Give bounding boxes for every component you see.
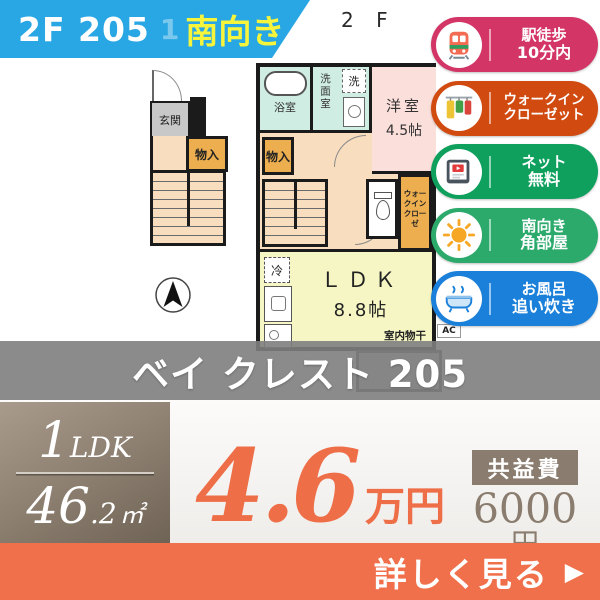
badge-walkin-closet: ウォークイン クローゼット [431,81,598,136]
closet-icon [436,85,482,131]
unit-ribbon: 2F 205 1 南向き [0,0,310,58]
floorplan-1f-section: 玄関 物入 [150,70,228,246]
rent-unit: 万円 [365,487,445,527]
room-storage-1f: 物入 [186,136,228,172]
room-western: 洋室 4.5帖 [372,67,436,174]
area-number: 46 [26,481,90,531]
washstand-fixture [343,97,365,127]
wic-label-line2: クローゼ [404,209,427,228]
stairs-divider [187,173,190,226]
badge-text-line2: クローゼット [496,108,592,123]
building-name-banner: ベイ クレスト 205 [0,341,600,400]
wic-label-line1: ウォークイン [404,189,427,208]
bathroom-label: 浴室 [260,99,310,115]
building-name: ベイ クレスト 205 [132,344,468,398]
floorplan-2f-section: 浴室 洗面室 洗 洋室 4.5帖 物入 ウォークイン クローゼ 冷 [256,63,436,351]
bathtub-fixture [264,71,307,96]
common-fee-label: 共益費 [472,450,578,485]
badge-text-line2: 10分内 [496,44,592,62]
washroom-label: 洗面室 [318,73,333,111]
summary-strip: 1 LDK 46 .2 ㎡ 4.6 万円 共益費 6000円 [0,400,600,543]
room-washroom: 洗面室 洗 [313,67,372,133]
toilet-tank [374,192,392,199]
spec-divider [16,472,154,474]
sun-icon [436,212,482,258]
north-arrow-icon [154,276,192,314]
stairs-1f [150,170,226,246]
layout-area-box: 1 LDK 46 .2 ㎡ [0,402,170,543]
badge-divider [489,219,491,251]
ribbon-watermark: 1 [160,13,179,46]
layout-number: 1 [38,415,70,465]
layout-suffix: LDK [70,431,132,464]
floorplan-floor-label: 2 F [341,8,396,32]
badge-divider [489,156,491,188]
laundry-machine-slot: 洗 [342,69,366,93]
badge-text-line2: 無料 [496,171,592,189]
unit-number: 2F 205 [18,10,150,49]
room-genkan: 玄関 [150,101,190,138]
western-room-label: 洋室 [372,95,436,116]
fridge-slot: 冷 [264,257,290,283]
area-decimal: .2 [90,497,117,530]
see-details-label: 詳しく見る [374,548,549,596]
floor-area [150,136,188,172]
ldk-label-group: ＬＤＫ 8.8帖 [290,264,432,322]
area-unit: ㎡ [120,495,144,530]
room-bathroom: 浴室 [260,67,313,133]
room-walkin-closet: ウォークイン クローゼ [398,174,432,251]
kitchen-sink-fixture [264,286,292,322]
ldk-size: 8.8帖 [290,296,432,322]
facing-direction-label: 南向き [185,5,284,53]
rent-price: 4.6 万円 [175,400,465,543]
badge-text-line1: ネット [496,154,592,171]
hallway-door-arc [334,135,366,167]
badge-divider [489,92,491,124]
toilet-bowl [376,200,390,220]
badge-text-line1: 駅徒歩 [496,27,592,44]
badge-bath-reheat: お風呂 追い炊き [431,271,598,326]
room-ldk: 冷 ＬＤＫ 8.8帖 室内物干 [260,249,432,347]
rent-value: 4.6 [195,445,357,527]
entrance-door-arc [153,70,182,101]
badge-free-internet: ネット 無料 [431,144,598,199]
badge-text-line2: 追い炊き [496,298,592,316]
internet-icon [436,149,482,195]
right-arrow-icon: ▶ [565,557,584,586]
wall-segment [190,97,206,138]
common-fee-value: 6000 [473,485,577,533]
listing-card: 2F 205 1 南向き 2 F 玄関 物入 浴室 洗面室 洗 洋室 4.5帖 … [0,0,600,600]
badge-south-corner: 南向き 角部屋 [431,208,598,263]
room-toilet [366,179,398,239]
badge-text-line2: 角部屋 [496,234,592,252]
stairs-2f [262,179,328,247]
room-storage-2f: 物入 [262,137,294,175]
badge-text-line1: 南向き [496,218,592,235]
badge-station-walk: 駅徒歩 10分内 [431,17,598,72]
see-details-button[interactable]: 詳しく見る ▶ [0,543,600,600]
train-icon [436,22,482,68]
bathtub-icon [436,276,482,322]
badge-divider [489,283,491,315]
western-room-size: 4.5帖 [372,120,436,140]
badge-text-line1: ウォークイン [496,93,592,108]
stairs-divider [294,182,297,229]
common-fee-block: 共益費 6000円 [460,450,590,558]
badge-text-line1: お風呂 [496,281,592,298]
badge-divider [489,29,491,61]
ldk-label: ＬＤＫ [290,264,432,294]
feature-badge-list: 駅徒歩 10分内 ウォークイン クローゼット [431,17,598,335]
